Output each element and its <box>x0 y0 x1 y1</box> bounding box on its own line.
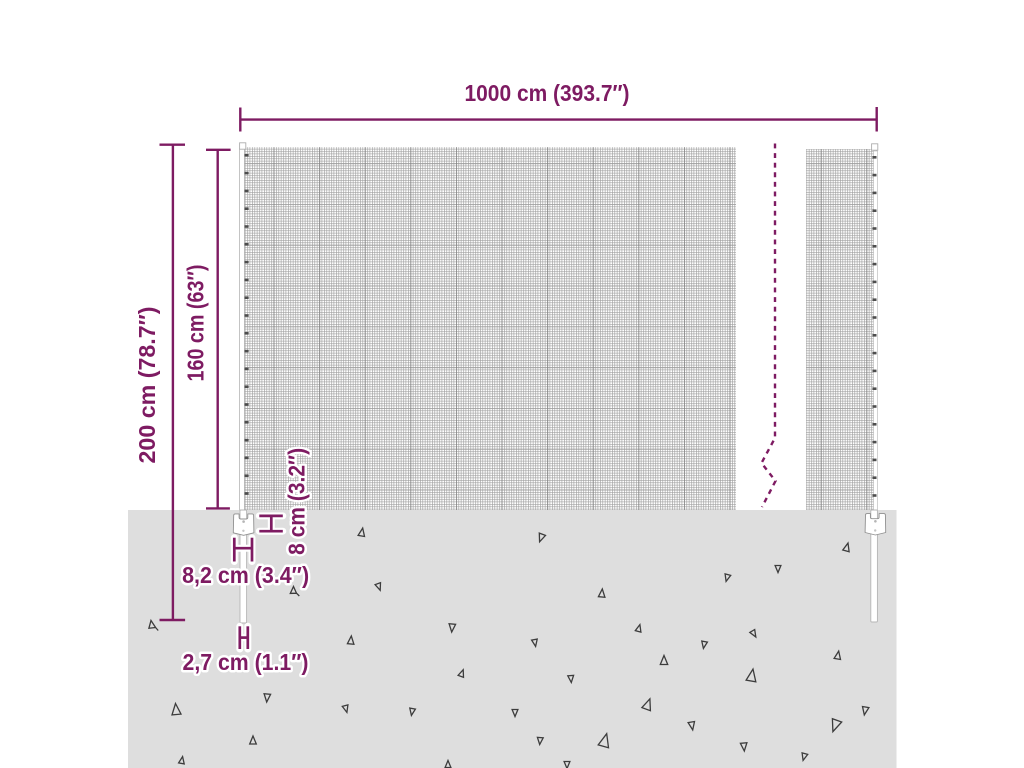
svg-text:200 cm (78.7″): 200 cm (78.7″) <box>134 307 160 464</box>
svg-text:8 cm (3.2″): 8 cm (3.2″) <box>284 448 310 555</box>
svg-text:1000 cm (393.7″): 1000 cm (393.7″) <box>465 80 630 106</box>
svg-text:160 cm (63″): 160 cm (63″) <box>182 265 208 382</box>
svg-text:8,2 cm (3.4″): 8,2 cm (3.4″) <box>182 562 309 588</box>
svg-text:2,7 cm (1.1″): 2,7 cm (1.1″) <box>183 649 309 675</box>
